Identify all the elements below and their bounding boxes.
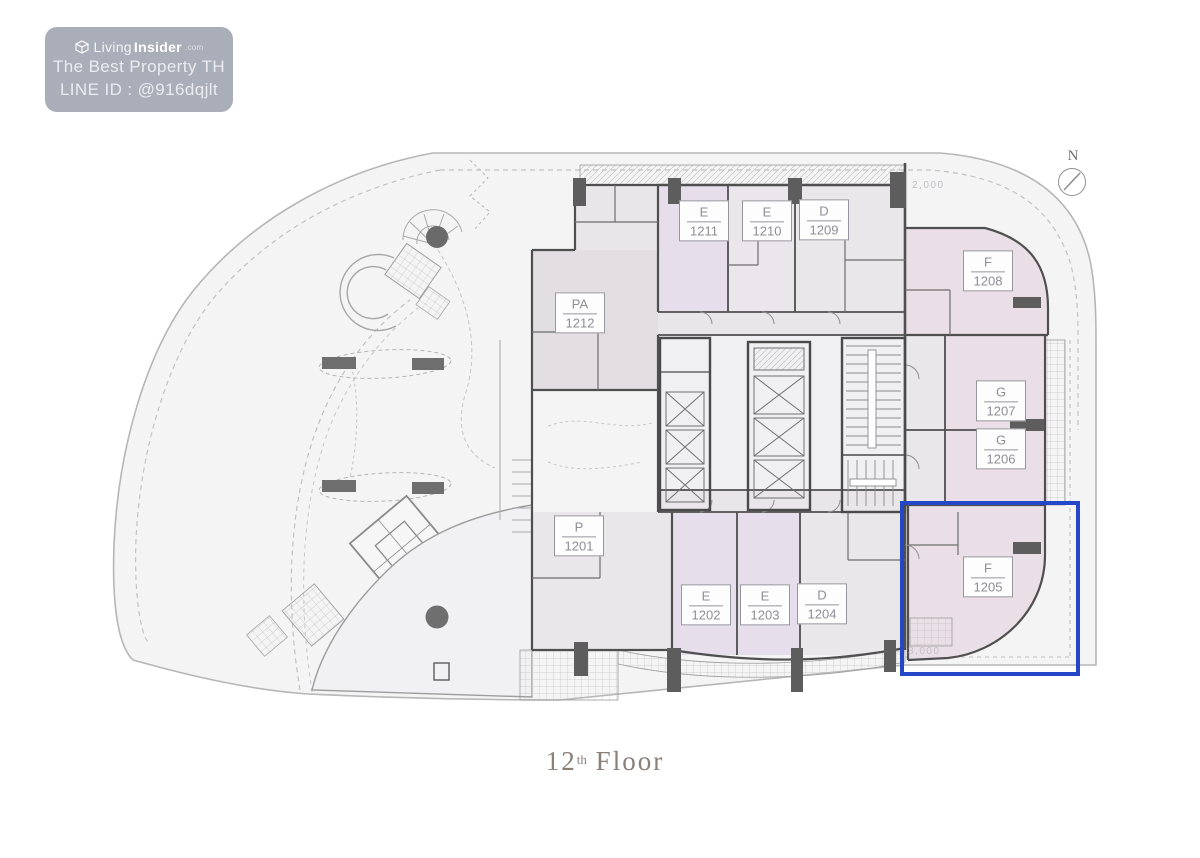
unit-label-1206: G 1206 (976, 428, 1026, 469)
cube-logo-icon (75, 40, 89, 54)
label-divider (687, 221, 721, 222)
tree-marker (426, 606, 449, 629)
unit-label-1211: E 1211 (679, 200, 729, 241)
unit-type: PA (572, 296, 588, 311)
unit-type: E (700, 204, 709, 219)
unit-number: 1207 (987, 403, 1016, 418)
caption-number: 12 (546, 746, 577, 776)
unit-number: 1205 (974, 579, 1003, 594)
corridor-bottom (658, 490, 905, 512)
unit-label-1210: E 1210 (742, 200, 792, 241)
brand-insider: Insider (134, 39, 182, 55)
brand-living: Living (94, 39, 132, 55)
tree-marker (426, 226, 448, 248)
unit-number: 1201 (565, 538, 594, 553)
label-divider (807, 220, 841, 221)
watermark-tagline: The Best Property TH (53, 56, 225, 77)
caption-ordinal: th (577, 752, 587, 767)
label-divider (563, 313, 597, 314)
watermark-brand: LivingInsider.com (75, 39, 204, 55)
unit-label-1205: F 1205 (963, 556, 1013, 597)
label-divider (971, 577, 1005, 578)
floorplan-page: LivingInsider.com The Best Property TH L… (0, 0, 1200, 858)
label-divider (689, 605, 723, 606)
north-compass: N (1048, 148, 1098, 200)
unit-type: G (996, 384, 1006, 399)
unit-number: 1203 (751, 607, 780, 622)
unit-type: P (575, 519, 584, 534)
unit-type: G (996, 432, 1006, 447)
unit-type: E (763, 204, 772, 219)
unit-label-1204: D 1204 (797, 583, 847, 624)
label-divider (562, 536, 596, 537)
unit-type: D (819, 203, 828, 218)
unit-label-1207: G 1207 (976, 380, 1026, 421)
label-divider (748, 605, 782, 606)
north-label: N (1068, 148, 1079, 165)
watermark-line-id: LINE ID : @916dqjlt (60, 79, 218, 100)
unit-number: 1204 (808, 606, 837, 621)
unit-type: E (702, 588, 711, 603)
unit-type: F (984, 254, 992, 269)
unit-label-1201: P 1201 (554, 515, 604, 556)
caption-word: Floor (596, 746, 665, 776)
label-divider (805, 604, 839, 605)
unit-number: 1212 (566, 315, 595, 330)
watermark-badge: LivingInsider.com The Best Property TH L… (45, 27, 233, 112)
unit-label-1202: E 1202 (681, 584, 731, 625)
unit-number: 1202 (692, 607, 721, 622)
upper-left-rooms (575, 185, 658, 250)
label-divider (984, 449, 1018, 450)
unit-label-1208: F 1208 (963, 250, 1013, 291)
unit-label-1203: E 1203 (740, 584, 790, 625)
unit-number: 1209 (810, 222, 839, 237)
unit-type: F (984, 560, 992, 575)
label-divider (984, 401, 1018, 402)
compass-needle-icon (1060, 170, 1084, 194)
label-divider (971, 271, 1005, 272)
unit-type: E (761, 588, 770, 603)
dimension-label-bottom: 3,000 (908, 646, 941, 657)
unit-number: 1211 (690, 223, 718, 238)
label-divider (750, 221, 784, 222)
unit-number: 1210 (753, 223, 782, 238)
unit-label-1212: PA 1212 (555, 292, 605, 333)
corridor-top (658, 312, 905, 335)
unit-number: 1208 (974, 273, 1003, 288)
unit-label-1209: D 1209 (799, 199, 849, 240)
dimension-label-top: 2,000 (912, 180, 945, 191)
unit-type: D (817, 587, 826, 602)
unit-number: 1206 (987, 451, 1016, 466)
brand-suffix: .com (185, 43, 204, 52)
right-wing-corridor (905, 335, 945, 505)
floor-caption: 12th Floor (546, 746, 664, 777)
